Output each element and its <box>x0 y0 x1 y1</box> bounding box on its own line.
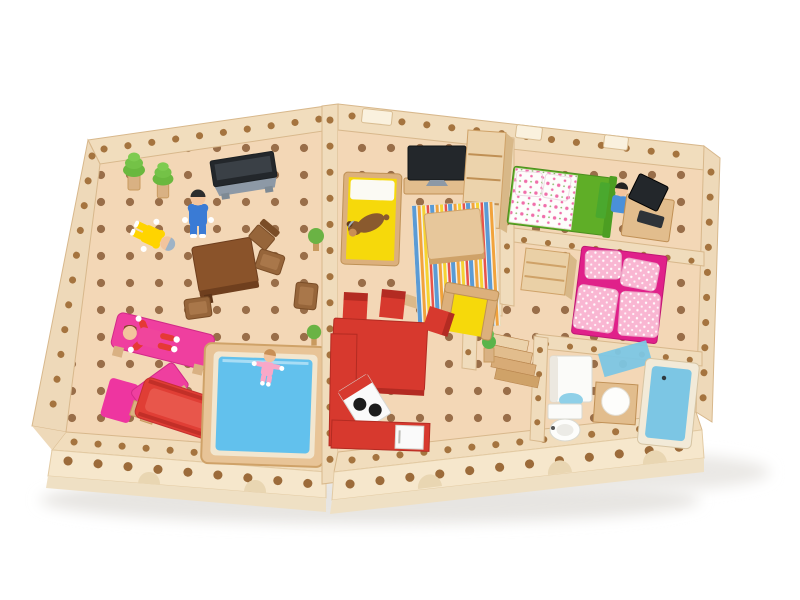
tv-leg <box>265 186 274 193</box>
shower-cabinet <box>550 356 592 407</box>
doll-shoe <box>199 234 206 238</box>
stool-face <box>188 301 207 315</box>
doll-hand <box>182 217 188 223</box>
dollhouse-illustration <box>0 0 800 600</box>
chair-seat <box>379 297 405 319</box>
daybed-pillow <box>350 179 395 201</box>
pool <box>201 343 327 467</box>
doll-shoe <box>190 234 197 238</box>
house <box>329 104 720 514</box>
photo-canvas: Overhead photo of a wooden toy dollhouse… <box>0 0 800 600</box>
yellow-daybed <box>341 172 402 266</box>
tv-screen <box>408 146 466 180</box>
polka-duvet <box>572 284 618 334</box>
plant-pot <box>484 348 494 362</box>
tv-leg <box>221 193 230 200</box>
bathtub <box>637 358 700 449</box>
toilet-tank <box>548 404 582 419</box>
red-chair <box>379 289 406 319</box>
pillow-pattern <box>515 171 543 197</box>
wooden-stool <box>294 282 319 310</box>
doll-hand <box>208 217 214 223</box>
toilet-seat <box>557 424 574 436</box>
kitchen-counter-bottom <box>331 420 430 451</box>
tree-foliage <box>128 153 140 162</box>
toilet-flush <box>551 426 555 430</box>
wooden-stool <box>184 296 213 319</box>
living-tv <box>404 146 470 194</box>
coffee-table <box>424 208 485 265</box>
pink-bed <box>571 246 667 344</box>
tree-foliage <box>157 162 168 171</box>
window-opening <box>361 108 392 125</box>
tub-water <box>645 366 692 442</box>
dresser-front <box>521 248 570 295</box>
pillow-pattern <box>542 173 572 201</box>
polka-duvet <box>618 291 661 338</box>
chair-seat <box>343 300 368 321</box>
courtyard <box>32 106 330 512</box>
window-opening <box>603 135 628 151</box>
washbasin-stand <box>593 382 638 425</box>
coffee-table-top <box>424 208 485 260</box>
window-opening <box>515 124 542 140</box>
bush-foliage <box>307 325 321 339</box>
floral-pillow <box>515 171 543 197</box>
duvet-pattern <box>618 291 661 338</box>
doll-body <box>189 205 207 226</box>
stool-face <box>298 286 314 305</box>
bush-foliage <box>308 228 324 244</box>
polka-pillow <box>585 250 621 279</box>
pillow-pattern <box>585 250 621 279</box>
shower-shade <box>550 356 558 402</box>
duvet-pattern <box>572 284 618 334</box>
floral-pillow <box>542 173 572 201</box>
red-chair <box>343 292 368 321</box>
